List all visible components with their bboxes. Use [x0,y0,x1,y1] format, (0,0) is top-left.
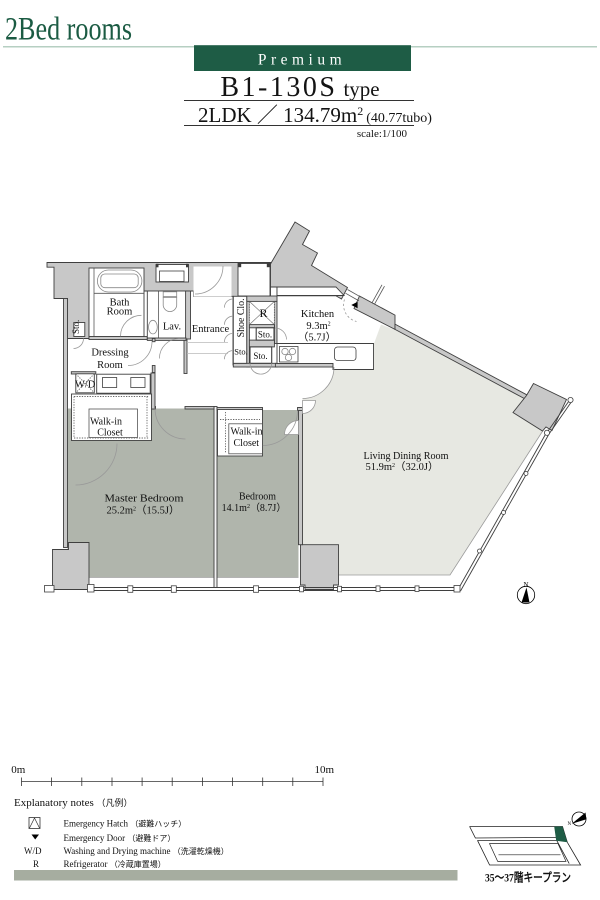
svg-text:B1-130Stype: B1-130Stype [220,72,379,103]
svg-text:N: N [523,581,528,589]
svg-text:Sto.: Sto. [71,320,81,334]
svg-text:Refrigerator （冷蔵庫置場）: Refrigerator （冷蔵庫置場） [64,859,166,869]
svg-text:25.2m2（15.5J）: 25.2m2（15.5J） [106,505,179,517]
svg-text:Premium: Premium [258,52,346,69]
svg-text:Washing and Drying machine （洗濯: Washing and Drying machine （洗濯乾燥機） [64,846,229,856]
svg-text:R: R [259,306,267,320]
svg-text:Lav.: Lav. [163,322,181,333]
svg-text:Shoe Clo.: Shoe Clo. [236,298,247,337]
svg-text:Room: Room [107,307,133,318]
svg-text:2LDK ／ 134.79m2(40.77tubo): 2LDK ／ 134.79m2(40.77tubo) [198,103,432,127]
svg-text:Walk-in: Walk-in [231,427,263,438]
svg-text:Sto.: Sto. [253,351,267,361]
svg-text:Kitchen: Kitchen [301,309,335,320]
svg-text:Emergency Hatch （避難ハッチ）: Emergency Hatch （避難ハッチ） [64,819,187,829]
svg-text:scale:1/100: scale:1/100 [357,128,408,140]
svg-text:N: N [568,822,572,827]
svg-text:Closet: Closet [234,438,260,449]
svg-text:51.9m2（32.0J）: 51.9m2（32.0J） [365,461,438,473]
svg-text:Sto.: Sto. [234,347,247,357]
svg-text:Room: Room [97,360,123,371]
svg-text:R: R [33,859,39,869]
svg-text:W/D: W/D [75,380,96,391]
svg-text:Bedroom: Bedroom [239,491,276,503]
svg-text:10m: 10m [315,764,335,776]
svg-text:Living Dining Room: Living Dining Room [364,450,449,462]
svg-text:Emergency Door （避難ドア）: Emergency Door （避難ドア） [64,833,176,843]
svg-text:Master Bedroom: Master Bedroom [105,493,184,505]
svg-text:2Bed rooms: 2Bed rooms [5,12,132,48]
svg-text:Sto.: Sto. [258,330,272,340]
svg-text:35〜37階キープラン: 35〜37階キープラン [485,870,571,885]
svg-text:Walk-in: Walk-in [90,417,122,428]
svg-text:W/D: W/D [24,846,42,856]
svg-text:14.1m2（8.7J）: 14.1m2（8.7J） [222,502,287,514]
svg-text:Explanatory notes （凡例）: Explanatory notes （凡例） [14,797,133,809]
svg-text:（5.7J）: （5.7J） [298,332,336,344]
svg-text:Closet: Closet [97,428,123,439]
svg-text:Entrance: Entrance [192,324,230,335]
svg-text:0m: 0m [11,764,25,776]
svg-text:9.3m2: 9.3m2 [306,321,330,332]
svg-text:Dressing: Dressing [91,348,129,359]
